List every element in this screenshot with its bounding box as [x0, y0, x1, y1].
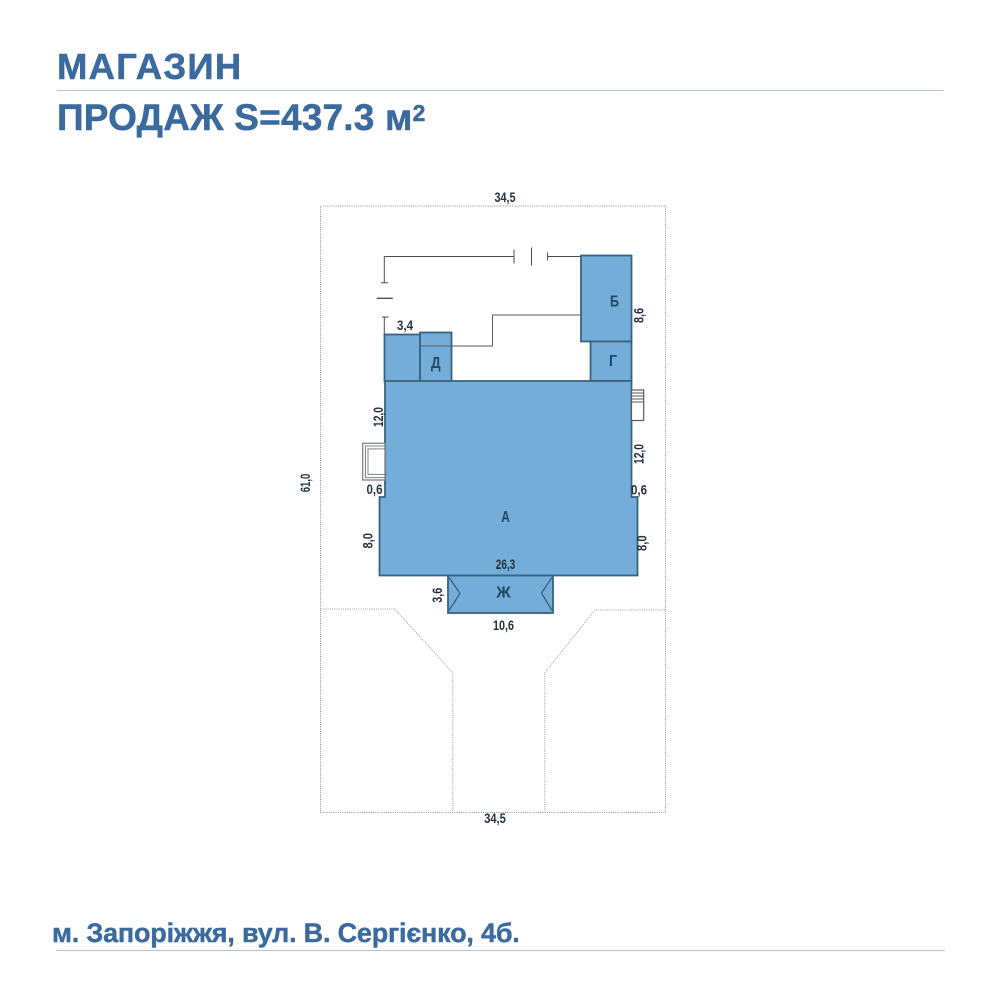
svg-text:А: А: [501, 509, 510, 526]
svg-text:34,5: 34,5: [495, 190, 516, 205]
svg-text:8,6: 8,6: [632, 308, 647, 323]
svg-text:34,5: 34,5: [484, 811, 506, 826]
svg-text:3,4: 3,4: [397, 318, 413, 333]
svg-text:Ж: Ж: [495, 585, 512, 602]
svg-text:26,3: 26,3: [496, 557, 516, 572]
svg-text:10,6: 10,6: [493, 618, 514, 633]
svg-text:12,0: 12,0: [371, 407, 386, 427]
svg-text:Б: Б: [610, 294, 619, 311]
svg-text:61,0: 61,0: [298, 474, 313, 493]
svg-text:0,6: 0,6: [367, 482, 383, 497]
svg-text:8,0: 8,0: [361, 533, 376, 549]
svg-text:8,0: 8,0: [635, 535, 650, 551]
svg-text:Г: Г: [609, 353, 617, 370]
svg-text:3,6: 3,6: [430, 587, 445, 602]
svg-text:12,0: 12,0: [632, 444, 647, 464]
svg-text:Д: Д: [431, 355, 441, 372]
svg-text:0,6: 0,6: [631, 483, 647, 498]
